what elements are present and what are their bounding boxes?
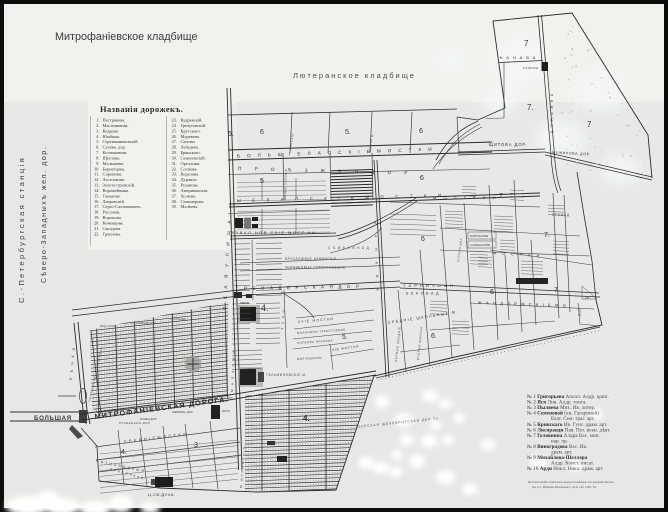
svg-text:18.: 18. [94,210,100,215]
svg-text:6.: 6. [96,145,99,150]
svg-text:2.: 2. [96,123,99,128]
svg-text:5.: 5. [342,334,348,341]
svg-text:№ 10 Арди Никл. Никл. драм. ар: № 10 Арди Никл. Никл. драм. арт. [527,466,604,472]
svg-text:33.: 33. [171,172,177,177]
svg-text:Юмбина.: Юмбина. [103,134,120,139]
svg-text:6: 6 [260,129,264,136]
svg-text:6.: 6. [431,333,437,340]
svg-text:Серго-Салтыковичъ.: Серго-Салтыковичъ. [103,204,142,209]
svg-text:Б Е К О В А Д: Б Е К О В А Д [406,292,439,296]
svg-text:Муревова.: Муревова. [181,134,201,139]
svg-text:3.: 3. [96,128,99,133]
svg-text:17.: 17. [94,204,100,209]
svg-text:Лютеранское кладбище: Лютеранское кладбище [293,71,416,80]
svg-text:С.-Петербургская станція: С.-Петербургская станція [17,156,26,303]
svg-text:ОРЕВАД: ОРЕВАД [552,213,570,217]
svg-text:Гречуговскій.: Гречуговскій. [181,123,207,128]
svg-text:34.: 34. [171,177,177,182]
svg-text:Малѣева.: Малѣева. [181,204,199,209]
svg-text:ЖЕРБИЦА ДОР: ЖЕРБИЦА ДОР [172,410,193,414]
svg-text:12.: 12. [94,177,100,182]
svg-text:23.: 23. [171,118,177,123]
svg-text:Американскія.: Американскія. [181,188,209,193]
svg-text:Кудрявскій.: Кудрявскій. [181,118,203,123]
svg-text:Крутскаго.: Крутскаго. [181,128,201,133]
svg-text:Соснова.: Соснова. [181,166,198,171]
svg-text:20.: 20. [94,221,100,226]
svg-text:Семеновскій.: Семеновскій. [181,155,206,160]
svg-text:7: 7 [587,120,592,129]
svg-text:Колпаковова.: Колпаковова. [103,150,128,155]
svg-text:Стремянниковскій.: Стремянниковскій. [103,139,139,144]
svg-text:Названія дорожекъ.: Названія дорожекъ. [100,105,183,114]
svg-text:5.: 5. [345,129,351,136]
svg-text:САРЖЕНКОВЫ: САРЖЕНКОВЫ [470,243,491,247]
svg-text:Гамазова.: Гамазова. [103,193,121,198]
svg-text:К А Н А В А: К А Н А В А [500,55,537,60]
svg-text:1.: 1. [96,118,99,123]
svg-text:30.: 30. [171,155,177,160]
svg-text:37.: 37. [171,193,177,198]
svg-text:Рузанова.: Рузанова. [181,183,199,188]
svg-text:28.: 28. [171,145,177,150]
svg-text:Ласточкова.: Ласточкова. [103,177,125,182]
svg-text:Сорокина.: Сорокина. [103,172,123,177]
svg-text:3: 3 [194,442,198,449]
svg-text:Т А Р Н И З О М Н: Т А Р Н И З О М Н [403,283,454,288]
svg-text:10.: 10. [94,166,100,171]
svg-text:22.: 22. [94,231,100,236]
svg-text:Лебедева.: Лебедева. [181,145,199,150]
svg-text:ТАЛЬМИНОВСКІЕ М.: ТАЛЬМИНОВСКІЕ М. [266,373,307,377]
svg-text:4.: 4. [261,303,269,313]
svg-text:8.: 8. [96,155,99,160]
svg-text:КРСЯ.: КРСЯ. [222,409,231,413]
svg-text:7.: 7. [527,103,534,112]
svg-text:Сильмерова.: Сильмерова. [181,199,205,204]
svg-text:14.: 14. [94,188,100,193]
svg-text:Д О Р О Ж К А: Д О Р О Ж К А [550,93,554,133]
svg-text:Пестрякова.: Пестрякова. [103,118,126,123]
svg-text:Ворожейкина.: Ворожейкина. [103,188,130,193]
svg-text:Сѣверо-Западныхъ жел. дор.: Сѣверо-Западныхъ жел. дор. [39,146,48,283]
svg-text:Кедрова.: Кедрова. [103,128,120,133]
svg-text:БРУСАЛИНЫЕ ДЗМИНСКІЕ: БРУСАЛИНЫЕ ДЗМИНСКІЕ [285,257,337,261]
svg-text:Лавровскій.: Лавровскій. [103,199,125,204]
svg-text:4.: 4. [96,134,99,139]
svg-text:Золотостремскій.: Золотостремскій. [103,183,136,188]
svg-text:4.: 4. [121,449,127,456]
svg-text:7: 7 [499,193,503,200]
svg-text:ОПАЛЬНЫЕ: ОПАЛЬНЫЕ [170,317,186,321]
svg-text:Щеглова.: Щеглова. [103,155,121,160]
svg-text:ЩИТОВА ДОР.: ЩИТОВА ДОР. [489,142,527,147]
svg-text:Кореляна.: Кореляна. [181,172,200,177]
svg-text:Ореллина.: Ореллина. [181,161,201,166]
svg-text:КУЗНЕЦКАЯ ДОР: КУЗНЕЦКАЯ ДОР [119,421,150,425]
svg-text:Бернетцова.: Бернетцова. [103,166,126,171]
svg-text:Масленикова.: Масленикова. [103,123,129,128]
svg-text:5.: 5. [228,131,234,138]
svg-text:25.: 25. [171,128,177,133]
svg-text:Сытова.: Сытова. [181,139,196,144]
svg-text:7: 7 [524,39,529,48]
svg-text:СТОРОЖ: СТОРОЖ [523,66,538,70]
svg-text:Ред. Ел., Мѣщанка Васильевна: Ред. Ел., Мѣщанка Васильевна д. 39-й, Сп… [532,486,597,489]
svg-text:32.: 32. [171,166,177,171]
svg-text:6: 6 [420,175,424,182]
svg-text:Брянскаго.: Брянскаго. [181,150,201,155]
svg-text:КМ: КМ [585,296,590,300]
svg-text:КУВАЛ НОВ СКІЕ МОСТ КИ: КУВАЛ НОВ СКІЕ МОСТ КИ [232,231,316,235]
svg-text:24.: 24. [171,123,177,128]
svg-text:Ц.СВ.ДУХА.: Ц.СВ.ДУХА. [148,492,175,497]
svg-text:13.: 13. [94,183,100,188]
svg-text:7.: 7. [554,287,560,294]
svg-text:МАРТИНОВЫ: МАРТИНОВЫ [470,234,489,238]
svg-text:Фотолитографія, журнальное вед: Фотолитографія, журнальное ведено и помѣ… [528,481,614,484]
svg-text:19.: 19. [94,215,100,220]
svg-text:ПРЕОБ: ПРЕОБ [240,301,249,305]
svg-text:Сухова. дор.: Сухова. дор. [103,145,126,150]
svg-text:27.: 27. [171,139,177,144]
svg-text:М О С Т К И И: М О С Т К И И [433,195,499,200]
svg-text:Скалдова.: Скалдова. [103,226,122,231]
svg-text:5.: 5. [96,139,99,144]
svg-text:4.: 4. [303,414,310,423]
svg-text:36.: 36. [171,188,177,193]
svg-text:Ковенцова.: Ковенцова. [103,221,124,226]
svg-text:Гронлова.: Гронлова. [103,231,122,236]
svg-text:КОНЕЦ ДОР: КОНЕЦ ДОР [140,417,157,421]
svg-text:Дуранча.: Дуранча. [181,177,198,182]
svg-text:Воронова.: Воронова. [103,215,122,220]
svg-text:6: 6 [419,128,423,135]
svg-text:ВРАС ТОЛА: ВРАС ТОЛА [100,324,116,328]
svg-text:Малышева.: Малышева. [103,161,125,166]
svg-text:26.: 26. [171,134,177,139]
svg-text:11.: 11. [94,172,99,177]
svg-text:С Ѣ М Е Н И Н А Д: С Ѣ М Е Н И Н А Д [328,246,369,250]
svg-text:35.: 35. [171,183,177,188]
svg-text:31.: 31. [171,161,177,166]
svg-text:16.: 16. [94,199,100,204]
svg-text:7.: 7. [96,150,99,155]
svg-text:21.: 21. [94,226,100,231]
svg-text:6: 6 [421,236,425,243]
svg-text:БОЛЬШАЯ: БОЛЬШАЯ [34,415,72,422]
svg-text:Холмна.: Холмна. [181,193,197,198]
svg-text:7.: 7. [544,232,550,239]
svg-text:9.: 9. [96,161,99,166]
svg-text:Митрофаніевское кладбище: Митрофаніевское кладбище [55,31,198,43]
svg-text:5: 5 [260,178,264,185]
svg-text:38.: 38. [171,199,177,204]
svg-text:СТЕЛЛЕВСКІЙ ДОР: СТЕЛЛЕВСКІЙ ДОР [130,321,156,325]
svg-text:ЗБИНИКОВЫЕ ГОРМОНІЕВСКІЕ: ЗБИНИКОВЫЕ ГОРМОНІЕВСКІЕ [285,266,346,270]
svg-text:29.: 29. [171,150,177,155]
svg-text:15.: 15. [94,193,100,198]
svg-text:6: 6 [490,289,494,296]
svg-text:Россоева.: Россоева. [103,210,121,215]
svg-text:39.: 39. [171,204,177,209]
